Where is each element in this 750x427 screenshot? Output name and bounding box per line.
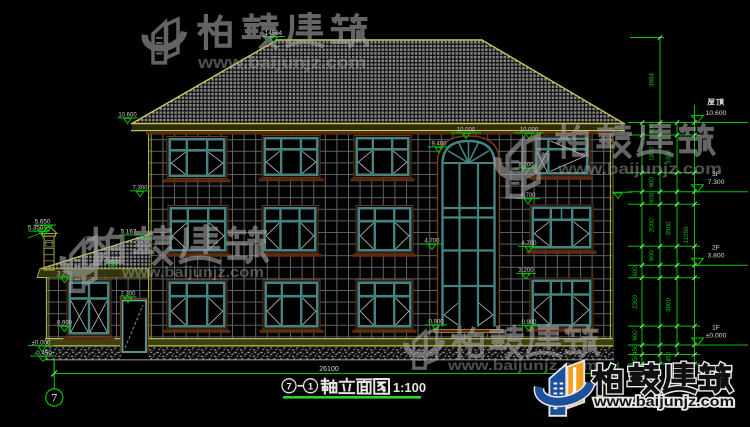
svg-text:www.baijunjz.com: www.baijunjz.com <box>197 53 366 72</box>
svg-text:900: 900 <box>632 330 639 341</box>
svg-text:2000: 2000 <box>649 218 656 233</box>
svg-text:7: 7 <box>51 391 57 405</box>
svg-text:900: 900 <box>649 250 656 261</box>
svg-text:www.baijunjz.com: www.baijunjz.com <box>557 161 722 178</box>
svg-text:26100: 26100 <box>319 366 339 373</box>
svg-text:900: 900 <box>649 176 656 187</box>
svg-text:2300: 2300 <box>632 295 639 310</box>
svg-text:600: 600 <box>649 192 656 203</box>
svg-text:600: 600 <box>632 266 639 277</box>
svg-text:3500: 3500 <box>666 221 673 236</box>
svg-text:1: 1 <box>308 381 314 392</box>
svg-text:2F: 2F <box>712 245 720 252</box>
svg-text:3.800: 3.800 <box>707 253 724 260</box>
svg-text:11050: 11050 <box>683 226 690 244</box>
svg-text:±0.000: ±0.000 <box>706 333 727 340</box>
svg-text:450: 450 <box>632 344 639 355</box>
svg-text:5.350: 5.350 <box>28 224 44 231</box>
svg-text:7: 7 <box>286 381 291 392</box>
svg-text:1F: 1F <box>712 325 720 332</box>
svg-text:www.baijunjz.com: www.baijunjz.com <box>121 264 264 281</box>
svg-text:www.baijunjz.com: www.baijunjz.com <box>593 394 734 409</box>
svg-text:10.600: 10.600 <box>706 110 727 117</box>
svg-text:1:100: 1:100 <box>393 380 426 395</box>
svg-text:3800: 3800 <box>666 298 673 313</box>
svg-text:3984: 3984 <box>649 73 656 88</box>
svg-text:450: 450 <box>666 351 673 362</box>
svg-text:7.300: 7.300 <box>707 179 724 186</box>
